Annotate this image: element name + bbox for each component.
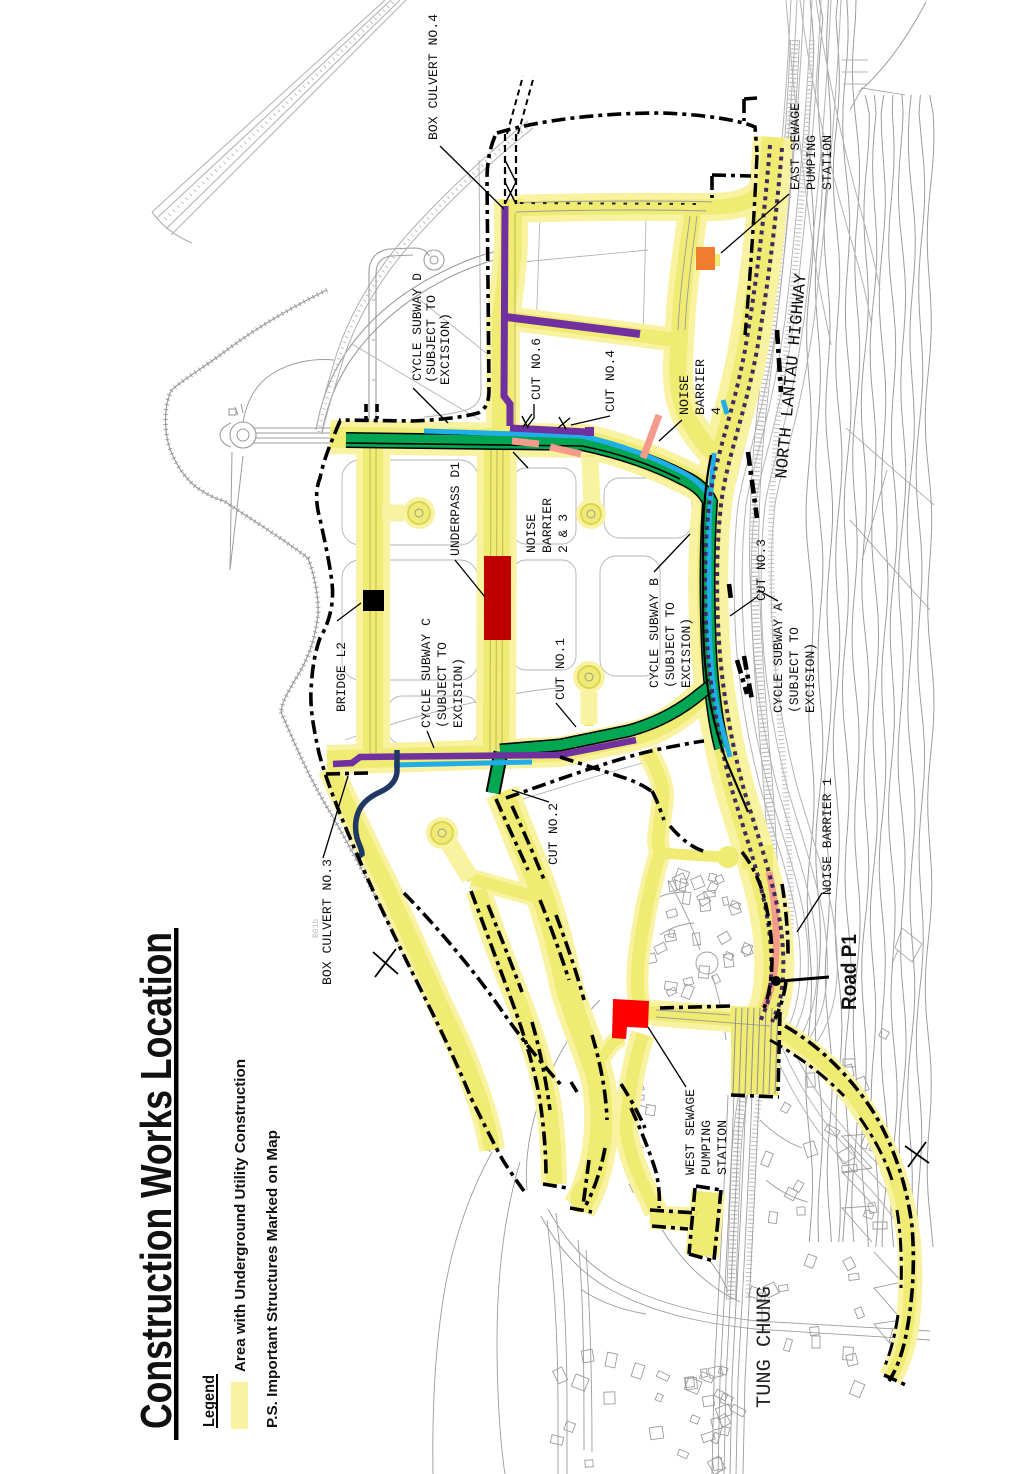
- svg-text:2 & 3: 2 & 3: [556, 514, 571, 553]
- svg-text:STATION: STATION: [715, 1120, 730, 1175]
- svg-text:4: 4: [709, 407, 724, 415]
- svg-text:CYCLE SUBWAY C: CYCLE SUBWAY C: [419, 618, 434, 728]
- svg-text:PUMPING: PUMPING: [699, 1120, 714, 1175]
- svg-text:CUT NO.4: CUT NO.4: [603, 350, 618, 412]
- svg-text:CYCLE SUBWAY B: CYCLE SUBWAY B: [647, 578, 662, 688]
- svg-text:Construction Works Location: Construction Works Location: [132, 932, 181, 1429]
- svg-text:BARRIER: BARRIER: [693, 359, 708, 415]
- svg-text:CYCLE SUBWAY A: CYCLE SUBWAY A: [771, 603, 786, 713]
- svg-text:WEST SEWAGE: WEST SEWAGE: [683, 1089, 698, 1175]
- svg-text:(SUBJECT TO: (SUBJECT TO: [663, 602, 678, 688]
- svg-text:TUNG CHUNG: TUNG CHUNG: [754, 1286, 777, 1408]
- svg-text:B01b: B01b: [312, 919, 321, 938]
- svg-text:(SUBJECT TO: (SUBJECT TO: [435, 642, 450, 728]
- svg-text:CUT NO.3: CUT NO.3: [754, 539, 769, 601]
- svg-text:Area with Underground Utility: Area with Underground Utility Constructi…: [232, 1059, 249, 1372]
- svg-text:BRIDGE L2: BRIDGE L2: [334, 642, 349, 712]
- svg-text:CUT NO.6: CUT NO.6: [529, 338, 544, 400]
- svg-text:PUMPING: PUMPING: [804, 135, 819, 190]
- svg-text:CUT NO.1: CUT NO.1: [553, 638, 568, 700]
- svg-text:(SUBJECT TO: (SUBJECT TO: [787, 627, 802, 713]
- svg-text:UNDERPASS D1: UNDERPASS D1: [448, 462, 463, 556]
- svg-text:EXCISION): EXCISION): [438, 313, 453, 385]
- svg-text:NOISE: NOISE: [524, 514, 539, 553]
- svg-text:(SUBJECT TO: (SUBJECT TO: [424, 295, 439, 383]
- svg-text:Legend: Legend: [201, 1375, 218, 1427]
- svg-text:BOX CULVERT NO.3: BOX CULVERT NO.3: [320, 859, 335, 985]
- svg-text:BOX CULVERT NO.4: BOX CULVERT NO.4: [426, 14, 441, 140]
- svg-text:EXCISION): EXCISION): [679, 618, 694, 688]
- svg-text:NOISE BARRIER 1: NOISE BARRIER 1: [820, 778, 835, 895]
- svg-text:STATION: STATION: [820, 135, 835, 190]
- svg-text:EXCISION): EXCISION): [803, 643, 818, 713]
- svg-text:EXCISION): EXCISION): [451, 658, 466, 728]
- svg-text:P.S. Important Structures Mark: P.S. Important Structures Marked on Map: [264, 1130, 281, 1428]
- svg-text:CUT NO.2: CUT NO.2: [546, 803, 561, 865]
- svg-text:EAST SEWAGE: EAST SEWAGE: [788, 103, 803, 190]
- svg-text:BARRIER: BARRIER: [540, 498, 555, 553]
- svg-text:NOISE: NOISE: [677, 375, 692, 415]
- svg-text:CYCLE SUBWAY D: CYCLE SUBWAY D: [410, 273, 425, 381]
- svg-text:Road P1: Road P1: [838, 934, 861, 1010]
